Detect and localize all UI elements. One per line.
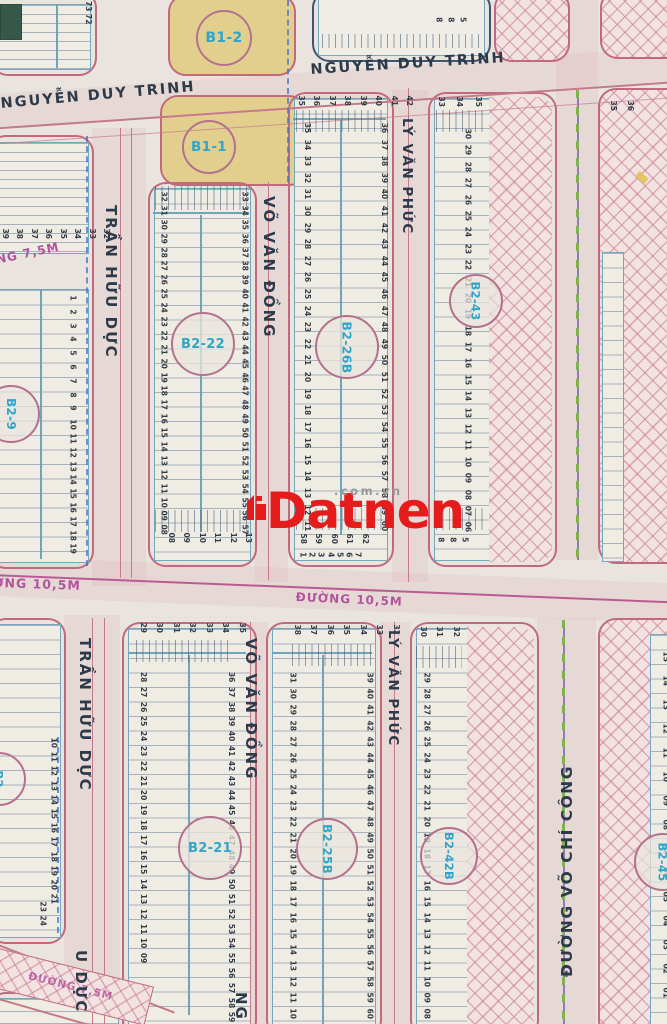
lot-number: 37 [328, 96, 336, 106]
lot-number: 27 [132, 687, 147, 698]
lot-number: 11 [646, 748, 667, 759]
lot-number: 16 [154, 414, 168, 425]
lot-number: 24 [415, 753, 431, 764]
lot-number: 27 [455, 178, 471, 189]
lot-number: 09 [154, 511, 168, 522]
lot-number: 40 [358, 689, 374, 700]
lot-number: 36 [326, 625, 334, 635]
lot-number: 33 [205, 623, 213, 633]
street-label-ly-van-phuc-lower: LÝ VĂN PHỨC [385, 630, 401, 747]
lot-number: 18 [132, 820, 147, 831]
lot-number: 09 [132, 953, 147, 964]
lot-number: 53 [220, 923, 235, 934]
lot-number: 14 [281, 945, 297, 956]
lot-number: 17 [154, 400, 168, 411]
lot-number: 12 [415, 945, 431, 956]
street-centerline-tran-huu-duc [131, 128, 132, 578]
lot-number: 15 [63, 489, 77, 500]
lot-number: 23 [132, 746, 147, 757]
lot-number: 73 [79, 1, 92, 12]
lot-number: 15 [415, 897, 431, 908]
lot-number: 10 [132, 938, 147, 949]
lot-number: 28 [455, 161, 471, 172]
lot-ticks [155, 186, 247, 210]
lot-number: 34 [235, 205, 249, 216]
lots-area [602, 252, 624, 562]
lot-number: 36 [371, 123, 388, 134]
lot-number: 22 [455, 260, 471, 271]
lot-number: 26 [294, 272, 311, 283]
lot-number: 13 [132, 894, 147, 905]
lot-number: 15 [43, 809, 57, 820]
lot-number: 11 [132, 923, 147, 934]
lot-number: 44 [371, 256, 388, 267]
lot-number: 25 [294, 289, 311, 300]
lot-number: 31 [172, 623, 180, 633]
lot-number: 30 [419, 627, 427, 637]
lot-number: 16 [415, 881, 431, 892]
lot-number: 09 [415, 993, 431, 1004]
lot-number: 09 [646, 796, 667, 807]
lot-number: 33 [235, 191, 249, 202]
lot-number: 15 [281, 929, 297, 940]
lot-number: 12 [229, 533, 237, 543]
lot-number: 27 [281, 737, 297, 748]
lot-number: 41 [358, 705, 374, 716]
lot-number: 12 [43, 766, 57, 777]
watermark-domain: .com.vn [334, 484, 403, 498]
lot-number: 38 [293, 625, 301, 635]
lot-number: 29 [455, 145, 471, 156]
lot-number: 50 [220, 879, 235, 890]
lot-number: 46 [358, 785, 374, 796]
lot-number: 21 [281, 833, 297, 844]
lot-number: 15 [154, 428, 168, 439]
street-centerline-tran-huu-duc-lower [104, 618, 105, 1024]
lot-ticks [136, 640, 232, 662]
lot-number: 54 [358, 913, 374, 924]
lot-number: 35 [294, 123, 311, 134]
lot-number: 36 [235, 233, 249, 244]
lot-number: 29 [139, 623, 147, 633]
lot-number: 11 [154, 483, 168, 494]
lot-number: 03 [646, 940, 667, 951]
lot-divider [56, 4, 58, 68]
lot-number: 41 [220, 746, 235, 757]
block-left-upper-lots [0, 135, 94, 569]
lot-number: 10 [43, 738, 57, 749]
lot-number: 49 [235, 414, 249, 425]
lot-number: 19 [294, 388, 311, 399]
lot-number: 52 [371, 388, 388, 399]
lot-number: 19 [281, 865, 297, 876]
lot-number: 47 [235, 386, 249, 397]
lot-number: 40 [375, 96, 383, 106]
lot-number: 30 [455, 129, 471, 140]
lot-number: 33 [294, 156, 311, 167]
lot-number: 19 [154, 372, 168, 383]
lot-number: 20 [281, 849, 297, 860]
lot-number: 30 [154, 219, 168, 230]
lot-number: 51 [371, 372, 388, 383]
lot-number: 13 [63, 461, 77, 472]
lot-number: 12 [281, 977, 297, 988]
lot-number: 23 [33, 902, 47, 913]
street-label-tran-huu-duc-upper: TRẦN HỮU DỰC [102, 205, 120, 359]
lot-number: 38 [235, 261, 249, 272]
lot-number: 56 [220, 968, 235, 979]
lot-number: 54 [371, 421, 388, 432]
lot-number: 26 [415, 721, 431, 732]
lot-number: 7 [354, 552, 362, 557]
lot-number: 18 [154, 386, 168, 397]
lot-number: 13 [281, 961, 297, 972]
lot-ticks [155, 510, 247, 532]
lot-ticks [416, 646, 462, 668]
lot-number: 30 [281, 689, 297, 700]
lot-number: 28 [281, 721, 297, 732]
lot-number: 11 [63, 433, 77, 444]
lot-number: 31 [294, 189, 311, 200]
lot-number: 13 [455, 407, 471, 418]
lot-number: 4 [327, 552, 335, 557]
lot-number: 14 [43, 794, 57, 805]
lot-number: 37 [30, 229, 38, 239]
lot-number: 23 [154, 316, 168, 327]
block-right-upper-hatched [598, 88, 667, 564]
block-label-b2-26b: B2-26B [315, 315, 379, 379]
lot-number: 50 [235, 428, 249, 439]
lot-number: 13 [43, 780, 57, 791]
lot-number: 12 [63, 447, 77, 458]
lot-number: 46 [235, 372, 249, 383]
lot-number: 18 [63, 530, 77, 541]
lot-number: 24 [281, 785, 297, 796]
lot-number: 27 [415, 705, 431, 716]
lot-number: 9 [63, 406, 77, 417]
block-label-b2-42b: B2-42B [420, 827, 478, 885]
lot-number: 5 [336, 552, 344, 557]
lot-number: 60 [358, 1009, 374, 1020]
lot-number: 17 [294, 421, 311, 432]
lot-number: 35 [474, 97, 482, 107]
lot-number: 38 [16, 229, 24, 239]
lot-number: 18 [281, 881, 297, 892]
lot-number: 29 [281, 705, 297, 716]
lot-number: 28 [154, 247, 168, 258]
lot-number: 52 [220, 909, 235, 920]
lot-number: 10 [646, 772, 667, 783]
lot-number: 41 [371, 206, 388, 217]
lot-number: 10 [281, 1009, 297, 1020]
lot-number: 52 [358, 881, 374, 892]
block-label-b2-22: B2-22 [171, 312, 235, 376]
lot-number: 16 [63, 502, 77, 513]
lot-number: 19 [132, 805, 147, 816]
lot-number: 59 [358, 993, 374, 1004]
lot-number: 21 [415, 801, 431, 812]
lot-number: 3 [317, 552, 325, 557]
lot-number: 27 [294, 256, 311, 267]
lot-number: 38 [344, 96, 352, 106]
lot-number: 39 [235, 275, 249, 286]
lot-number: 46 [371, 289, 388, 300]
lot-number: 12 [646, 724, 667, 735]
lot-number: 23 [455, 243, 471, 254]
lot-number: 34 [359, 625, 367, 635]
lot-number: 43 [235, 330, 249, 341]
lot-number: 15 [646, 652, 667, 663]
lot-number: 44 [220, 790, 235, 801]
lot-number: 47 [358, 801, 374, 812]
lot-number: 18 [43, 851, 57, 862]
lot-number: 30 [156, 623, 164, 633]
lot-number: 55 [358, 929, 374, 940]
lot-number: 24 [455, 227, 471, 238]
street-label-vo-van-dong-upper: VÕ VĂN ĐỒNG [260, 196, 278, 339]
lot-number: 14 [154, 441, 168, 452]
lot-number: 26 [455, 194, 471, 205]
lot-number: 23 [294, 322, 311, 333]
lot-number: 44 [235, 344, 249, 355]
lot-number: 33 [88, 229, 96, 239]
lot-number: 35 [235, 219, 249, 230]
lot-number: 38 [371, 156, 388, 167]
dashed-boundary [86, 136, 88, 566]
lot-number: 27 [154, 261, 168, 272]
lot-number: 8 [435, 17, 443, 22]
cadastral-map: B1-2 B1-1 B2-22 B2-26B B2-43 [0, 0, 667, 1024]
lot-number: 10 [154, 497, 168, 508]
lot-number: 11 [455, 440, 471, 451]
lot-number: 55 [371, 438, 388, 449]
lot-number: 11 [43, 752, 57, 763]
lot-number: 10 [63, 420, 77, 431]
lot-number: 41 [390, 96, 398, 106]
lot-number: 28 [294, 239, 311, 250]
dashed-boundary [287, 0, 289, 182]
lot-divider [40, 289, 42, 559]
lot-number: 22 [154, 330, 168, 341]
lot-number: 29 [154, 233, 168, 244]
lot-number: 35 [59, 229, 67, 239]
lot-number: 1 [63, 295, 77, 306]
lot-number: 4 [63, 337, 77, 348]
lot-number: 58 [358, 977, 374, 988]
lot-number: 51 [235, 441, 249, 452]
lot-number: 45 [220, 805, 235, 816]
lot-number: 22 [294, 339, 311, 350]
lot-number: 24 [294, 305, 311, 316]
lot-number: 16 [294, 438, 311, 449]
block-label-b2-25b: B2-25B [296, 818, 358, 880]
block-top-hatched [494, 0, 570, 62]
lot-number: 45 [371, 272, 388, 283]
lot-number: 24 [154, 303, 168, 314]
street-label-ly-van-phuc-upper: LÝ VĂN PHỨC [399, 118, 415, 235]
lot-number: 42 [406, 96, 414, 106]
lot-number: 14 [63, 475, 77, 486]
lot-number: 26 [281, 753, 297, 764]
lot-number: 50 [358, 849, 374, 860]
lot-number: 8 [63, 392, 77, 403]
lot-number: 8 [447, 17, 455, 22]
lot-number: 32 [294, 173, 311, 184]
lot-number: 45 [358, 769, 374, 780]
lot-number: 2 [308, 552, 316, 557]
lot-number: 53 [371, 405, 388, 416]
lot-number: 2 [63, 309, 77, 320]
lot-number: 37 [235, 247, 249, 258]
lot-number: 72 [79, 14, 92, 25]
lot-number: 42 [235, 316, 249, 327]
lot-number: 11 [415, 961, 431, 972]
lot-number: 20 [132, 790, 147, 801]
lot-number: 6 [345, 552, 353, 557]
lot-number: 13 [415, 929, 431, 940]
lot-number: 24 [33, 916, 47, 927]
lot-number: 20 [294, 372, 311, 383]
lot-number: 09 [183, 533, 191, 543]
lot-number: 41 [235, 303, 249, 314]
lot-number: 49 [358, 833, 374, 844]
lot-number: 16 [43, 823, 57, 834]
lot-number: 26 [154, 275, 168, 286]
lot-number: 52 [235, 455, 249, 466]
lot-number: 5 [459, 17, 467, 22]
lot-number: 21 [132, 775, 147, 786]
lot-number: 16 [281, 913, 297, 924]
lot-number: 1 [299, 552, 307, 557]
lot-number: 16 [132, 849, 147, 860]
lot-number: 12 [132, 909, 147, 920]
street-label-tran-huu-duc-lower: TRẦN HỮU DỰC [76, 638, 94, 792]
lot-number: 38 [220, 701, 235, 712]
block-label-b1-1: B1-1 [182, 120, 236, 174]
lot-number: 35 [238, 623, 246, 633]
lot-number: 37 [220, 687, 235, 698]
lot-number: 40 [220, 731, 235, 742]
green-patch [0, 4, 22, 40]
lot-number: 37 [371, 139, 388, 150]
lot-number: 21 [294, 355, 311, 366]
lot-number: 17 [43, 837, 57, 848]
lot-number: 15 [455, 375, 471, 386]
lot-number: 17 [455, 342, 471, 353]
lot-number: 22 [415, 785, 431, 796]
lot-number: 32 [189, 623, 197, 633]
lot-number: 43 [358, 737, 374, 748]
lot-number: 01 [646, 988, 667, 999]
lot-number: 39 [371, 173, 388, 184]
lot-number: 08 [646, 820, 667, 831]
lot-number: 23 [415, 769, 431, 780]
lot-number: 25 [281, 769, 297, 780]
lot-number: 15 [132, 864, 147, 875]
street-label-tran-huu-duc-partial: U DỰC [72, 950, 90, 1013]
lot-number: 35 [609, 101, 617, 111]
lot-number: 40 [371, 189, 388, 200]
street-label-vo-van-dong-partial: NG [232, 992, 250, 1021]
lot-number: 30 [294, 206, 311, 217]
lot-number: 31 [154, 205, 168, 216]
lot-number: 25 [154, 289, 168, 300]
lot-number: 39 [220, 716, 235, 727]
lot-number: 31 [281, 673, 297, 684]
lot-number: 39 [358, 673, 374, 684]
lot-number: 34 [456, 97, 464, 107]
lot-number: 7 [63, 378, 77, 389]
block-label-b2-43: B2-43 [449, 274, 503, 328]
lot-number: 18 [294, 405, 311, 416]
lot-number: 36 [313, 96, 321, 106]
lot-number: 33 [376, 625, 384, 635]
lot-number: 42 [220, 761, 235, 772]
lot-number: 17 [132, 835, 147, 846]
lot-number: 48 [358, 817, 374, 828]
lot-number: 24 [132, 731, 147, 742]
lot-number: 12 [154, 469, 168, 480]
lot-number: 44 [358, 753, 374, 764]
lot-number: 39 [1, 229, 9, 239]
lot-number: 43 [220, 775, 235, 786]
street-centerline-tran-huu-duc [120, 128, 121, 578]
lot-number: 57 [358, 961, 374, 972]
lot-number: 56 [371, 455, 388, 466]
lot-number: 15 [294, 455, 311, 466]
watermark: Datnen .com.vn [244, 474, 464, 544]
lot-number: 10 [198, 533, 206, 543]
lot-number: 05 [646, 892, 667, 903]
block-label-b2-21: B2-21 [178, 816, 242, 880]
lot-number: 13 [154, 455, 168, 466]
lot-number: 42 [371, 222, 388, 233]
lot-number: 20 [43, 879, 57, 890]
lot-number: 43 [371, 239, 388, 250]
lot-number: 35 [343, 625, 351, 635]
median-green-dashes [576, 90, 579, 560]
lot-number: 11 [214, 533, 222, 543]
lot-number: 53 [358, 897, 374, 908]
lot-number: 25 [415, 737, 431, 748]
lot-number: 42 [358, 721, 374, 732]
lot-number: 19 [43, 865, 57, 876]
lot-number: 22 [132, 761, 147, 772]
lot-number: 36 [220, 672, 235, 683]
hatched-area [467, 627, 534, 1024]
lot-number: 32 [452, 627, 460, 637]
lot-number: 39 [359, 96, 367, 106]
lot-number: 08 [167, 533, 175, 543]
lot-number: 28 [132, 672, 147, 683]
lot-number: 45 [235, 358, 249, 369]
lot-number: 5 [63, 351, 77, 362]
lot-number: 29 [294, 222, 311, 233]
lot-number: 51 [220, 894, 235, 905]
lot-number: 14 [415, 913, 431, 924]
lot-ticks [292, 644, 376, 666]
hatched-area [489, 97, 552, 562]
lot-number: 14 [455, 391, 471, 402]
lot-number: 25 [132, 716, 147, 727]
lot-number: 08 [415, 1009, 431, 1020]
lot-number: 17 [63, 516, 77, 527]
lot-number: 29 [415, 673, 431, 684]
lot-number: 16 [455, 358, 471, 369]
lot-ticks [322, 34, 480, 48]
lot-number: 34 [222, 623, 230, 633]
lot-number: 25 [455, 211, 471, 222]
